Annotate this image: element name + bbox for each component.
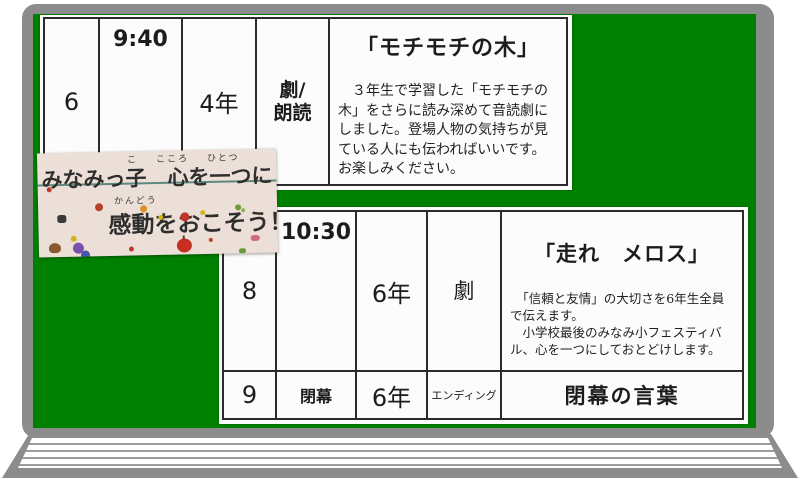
- program-description: 「信頼と友情」の大切さを6年生全員 で伝えます。 小学校最後のみなみ小フェスティ…: [510, 290, 736, 358]
- program-table-bottom: 8 10:30 6年 劇 「走れ メロス」 「信頼と友情」の大切さを6年生全員 …: [219, 207, 748, 424]
- category-value: 劇/ 朗読: [273, 79, 311, 125]
- petal-icon: [251, 235, 260, 241]
- dot-icon: [47, 187, 52, 192]
- category-cell: エンディング: [428, 370, 502, 418]
- page: 6 9:40 4年 劇/ 朗読 「モチモチの木」 ３年生で学習した「モチモチの …: [0, 0, 800, 485]
- slogan-banner: こ こころ ひとつ みなみっ子 心を一つに かんどう 感動をおこそう！！: [37, 149, 278, 258]
- dot-icon: [129, 247, 134, 252]
- time-cell: 10:30: [277, 212, 357, 370]
- time-value: 9:40: [113, 27, 168, 52]
- banner-slogan-line1: みなみっ子 心を一つに: [41, 160, 273, 195]
- maple-leaf-icon: [95, 203, 103, 211]
- category-cell: 劇: [428, 212, 502, 370]
- star-icon: [140, 205, 147, 212]
- program-number: 9: [242, 381, 257, 409]
- chalk-tray-stripes: [16, 438, 784, 468]
- leaf-icon: [239, 248, 246, 253]
- category-value: エンディング: [431, 387, 496, 403]
- detail-cell: 閉幕の言葉: [502, 370, 742, 418]
- closing-label: 閉幕: [300, 383, 332, 407]
- dot-icon: [158, 215, 163, 220]
- grade-cell: 6年: [357, 370, 428, 418]
- program-number-cell: 9: [224, 370, 277, 418]
- flower-icon: [81, 250, 90, 257]
- apple-icon: [177, 238, 192, 252]
- chestnut-icon: [49, 243, 61, 253]
- program-description: ３年生で学習した「モチモチの 木」をさらに読み深めて音読劇に しました。登場人物…: [338, 82, 562, 180]
- chalk-tray: [2, 434, 798, 478]
- grade-value: 6年: [372, 274, 411, 309]
- closing-words: 閉幕の言葉: [565, 380, 680, 410]
- butterfly-icon: [241, 208, 245, 212]
- time-value: 10:30: [281, 220, 351, 245]
- dot-icon: [209, 238, 213, 242]
- program-number: 6: [64, 88, 79, 116]
- program-table-bottom-grid: 8 10:30 6年 劇 「走れ メロス」 「信頼と友情」の大切さを6年生全員 …: [222, 210, 744, 420]
- grade-value: 4年: [199, 84, 238, 119]
- grade-value: 6年: [372, 378, 411, 413]
- dot-icon: [71, 236, 77, 242]
- grade-cell: 6年: [357, 212, 428, 370]
- program-number: 8: [242, 277, 257, 305]
- program-title: 「モチモチの木」: [330, 30, 566, 62]
- detail-cell: 「モチモチの木」 ３年生で学習した「モチモチの 木」をさらに読み深めて音読劇に …: [330, 19, 566, 184]
- bug-icon: [57, 215, 66, 223]
- program-title: 「走れ メロス」: [502, 238, 742, 268]
- time-cell: 閉幕: [277, 370, 357, 418]
- detail-cell: 「走れ メロス」 「信頼と友情」の大切さを6年生全員 で伝えます。 小学校最後の…: [502, 212, 742, 370]
- category-value: 劇: [454, 280, 475, 303]
- dot-icon: [200, 210, 205, 215]
